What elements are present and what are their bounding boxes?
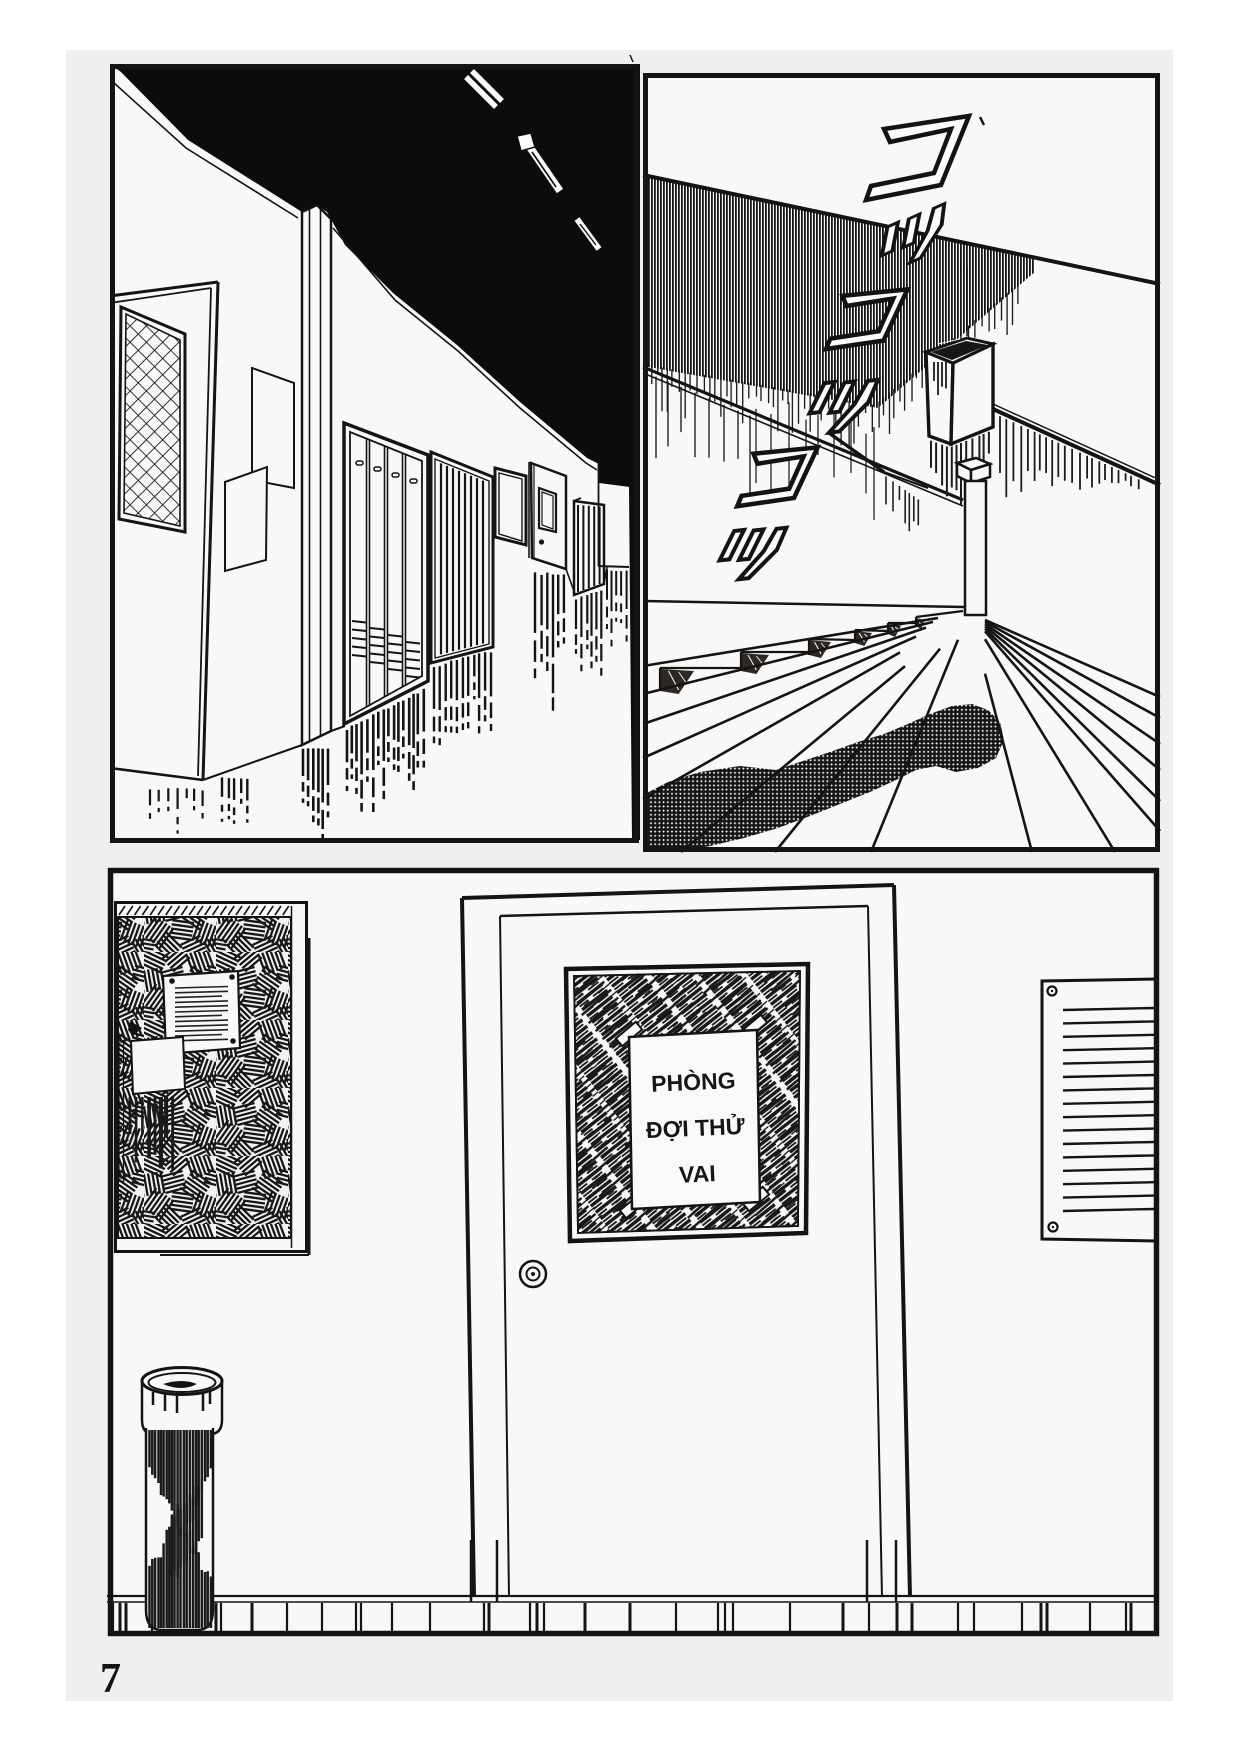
svg-text:VAI: VAI	[678, 1160, 716, 1188]
svg-text:ĐỢI THỬ: ĐỢI THỬ	[645, 1111, 746, 1143]
svg-text:7: 7	[100, 1656, 121, 1702]
svg-text:PHÒNG: PHÒNG	[651, 1066, 736, 1097]
